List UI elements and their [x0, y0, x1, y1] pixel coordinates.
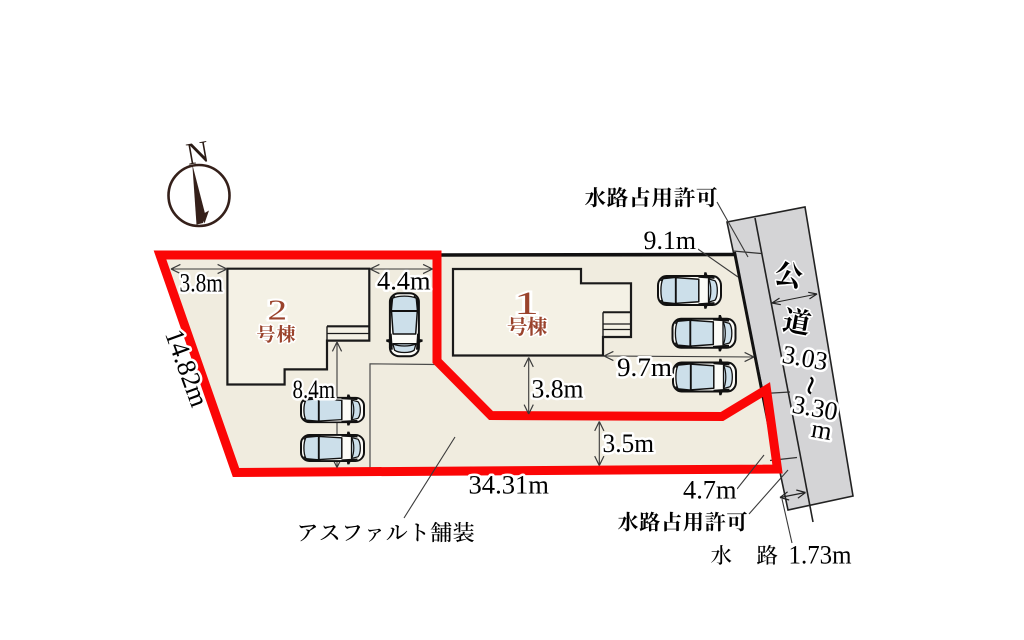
svg-text:3.5m: 3.5m	[603, 429, 655, 458]
svg-text:3.8m: 3.8m	[532, 375, 584, 404]
svg-text:4.4m: 4.4m	[377, 267, 431, 296]
svg-text:8.4m: 8.4m	[293, 375, 336, 404]
svg-text:9.1m: 9.1m	[644, 226, 697, 255]
svg-text:3.8m: 3.8m	[180, 269, 224, 298]
svg-text:2: 2	[268, 294, 288, 326]
svg-text:4.7m: 4.7m	[683, 476, 737, 505]
svg-text:34.31m: 34.31m	[469, 471, 550, 500]
svg-text:1.73m: 1.73m	[789, 541, 852, 570]
svg-text:9.7m: 9.7m	[617, 353, 672, 382]
